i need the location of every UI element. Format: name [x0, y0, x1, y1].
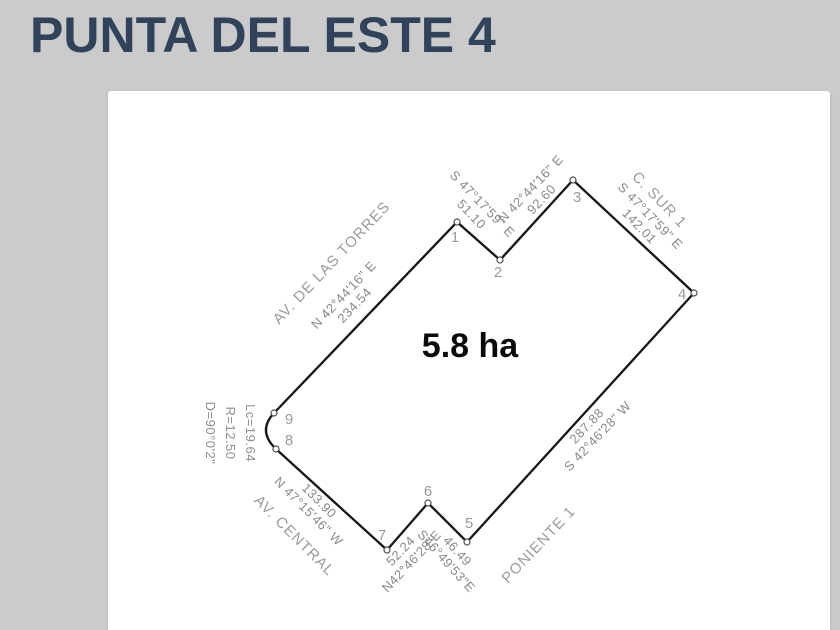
street-label-poniente-1: PONIENTE 1	[498, 503, 579, 587]
curve-length-text: Lc=19.64	[243, 404, 258, 462]
vertex-number: 5	[465, 515, 473, 532]
side-label-4-5: 287.88 S 42°46'28" W	[550, 388, 634, 474]
vertex-marker	[570, 177, 576, 183]
page: PUNTA DEL ESTE 4 1 2 3 4 5 6 7 8 9 N 42°…	[0, 0, 840, 630]
vertex-number: 9	[285, 411, 293, 428]
vertex-number: 2	[494, 264, 502, 281]
vertex-number: 3	[573, 189, 581, 206]
plat-drawing: 1 2 3 4 5 6 7 8 9 N 42°44'16" E 234.54 S…	[0, 0, 840, 630]
vertex-marker	[464, 539, 470, 545]
curve-data-label: Lc=19.64 R=12.50 D=90°0'2"	[203, 402, 258, 465]
vertex-marker	[273, 446, 279, 452]
vertex-number: 4	[678, 286, 686, 303]
vertex-marker	[425, 500, 431, 506]
vertex-number: 7	[378, 527, 386, 544]
curve-delta-text: D=90°0'2"	[203, 402, 218, 465]
vertex-number: 1	[451, 229, 459, 246]
vertex-number: 8	[285, 432, 293, 449]
side-label-2-3: N 42°44'16" E 92.60	[495, 152, 577, 236]
vertex-marker	[497, 257, 503, 263]
lot-boundary	[266, 180, 694, 550]
area-label: 5.8 ha	[422, 327, 519, 365]
vertex-number: 6	[424, 483, 432, 500]
vertex-marker	[454, 219, 460, 225]
vertex-marker	[271, 410, 277, 416]
curve-radius-text: R=12.50	[223, 406, 238, 459]
street-name: PONIENTE 1	[498, 503, 579, 587]
vertex-marker	[691, 290, 697, 296]
